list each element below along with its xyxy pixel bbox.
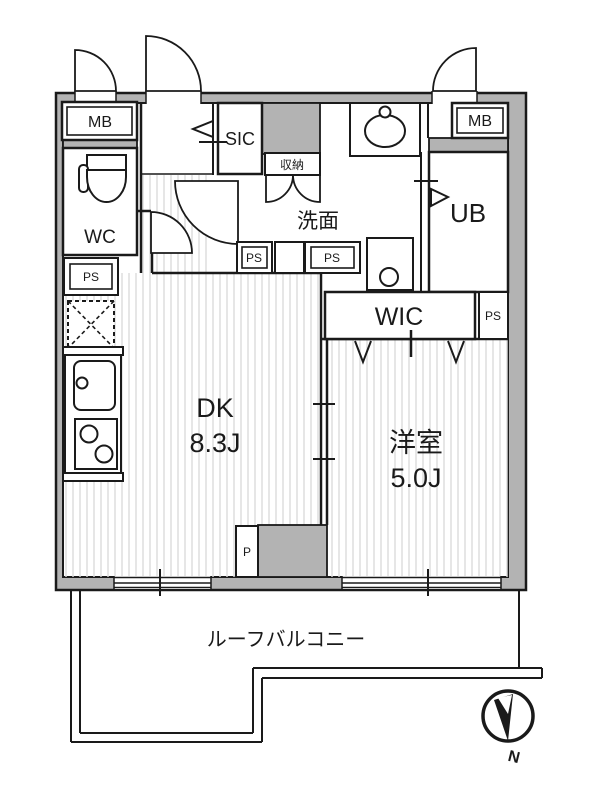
kitchen-counter-cap-top (63, 347, 123, 355)
vanity-basin (365, 115, 405, 147)
western-room-name-label: 洋室 (389, 428, 443, 458)
entrance-opening (146, 91, 201, 104)
pipe-space-left: PS (64, 258, 118, 295)
unit-bath: UB (414, 152, 508, 292)
ps-right-label: PS (485, 309, 501, 323)
western-window-lines (342, 576, 501, 589)
toilet-tank (87, 155, 126, 170)
washroom-label: 洗面 (297, 210, 339, 233)
floor-plan-drawing: MB WC PS SIC 収納 (0, 0, 600, 800)
western-room-floor (327, 339, 508, 577)
wall-block-top-middle (262, 103, 320, 154)
kitchen-stove (75, 419, 117, 469)
kitchen (63, 347, 123, 481)
storage-label: 収納 (280, 158, 304, 172)
kitchen-counter-cap-bottom (63, 473, 123, 481)
vanity-faucet (380, 107, 391, 118)
wc-label: WC (84, 227, 116, 248)
stove-burner-2 (96, 446, 113, 463)
pillar-label: P (243, 545, 251, 559)
meter-box-left: MB (62, 102, 137, 140)
kitchen-faucet (77, 378, 88, 389)
balcony-label: ルーフバルコニー (207, 629, 365, 651)
sic-label: SIC (225, 129, 255, 149)
pipe-space-right: PS (479, 292, 508, 339)
ps-mid2-label: PS (324, 251, 340, 265)
floor-plan-page: MB WC PS SIC 収納 (0, 0, 600, 800)
utility-box-unlabeled (275, 242, 304, 273)
ps-left-label: PS (83, 270, 99, 284)
wall-block-bottom-middle (258, 525, 327, 577)
refrigerator-space (68, 301, 114, 348)
wic-label: WIC (375, 303, 424, 331)
western-room-size-label: 5.0J (390, 463, 441, 493)
storage-closet: 収納 (265, 153, 320, 175)
wall-block-under-right-mb (429, 138, 508, 152)
pipe-space-mid-right: PS (305, 242, 360, 273)
mb-left-label: MB (88, 114, 112, 131)
pillar: P (236, 526, 258, 577)
washer-drain (380, 268, 398, 286)
ps-mid1-label: PS (246, 251, 262, 265)
dk-size-label: 8.3J (189, 428, 240, 458)
dk-window-lines (114, 576, 211, 589)
pipe-space-mid-left: PS (237, 242, 272, 273)
mb-right-label: MB (468, 113, 492, 130)
toilet-room: WC (63, 148, 137, 255)
dk-name-label: DK (196, 393, 234, 423)
stove-burner-1 (81, 426, 98, 443)
meter-box-right: MB (452, 103, 508, 138)
ub-label: UB (450, 198, 486, 228)
